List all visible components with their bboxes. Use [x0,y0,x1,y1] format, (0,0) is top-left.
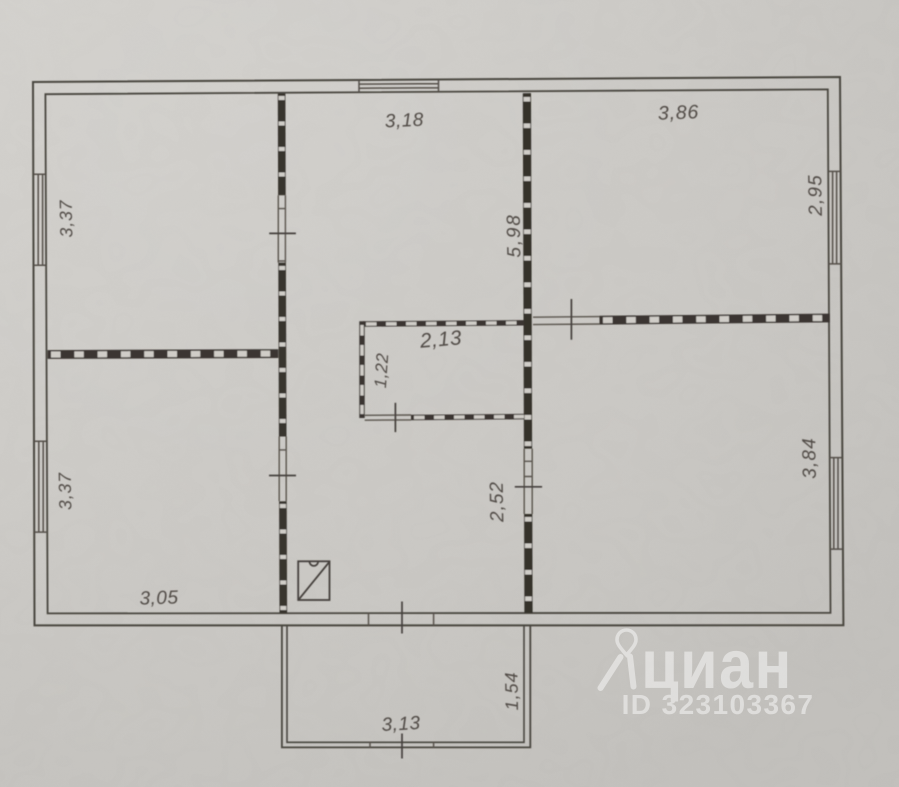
svg-text:3,37: 3,37 [55,472,76,511]
svg-text:ID 323103367: ID 323103367 [622,689,815,720]
svg-text:1,54: 1,54 [501,671,522,710]
svg-text:3,37: 3,37 [56,199,77,238]
svg-text:3,84: 3,84 [799,437,821,479]
svg-text:2,52: 2,52 [487,481,509,523]
svg-text:5,98: 5,98 [504,213,526,258]
svg-text:3,13: 3,13 [381,713,421,736]
svg-text:2,95: 2,95 [805,174,827,217]
svg-text:3,86: 3,86 [658,101,700,124]
svg-text:3,05: 3,05 [139,587,179,609]
svg-text:1,22: 1,22 [371,352,392,388]
svg-text:2,13: 2,13 [418,326,463,353]
svg-text:3,18: 3,18 [384,110,424,133]
